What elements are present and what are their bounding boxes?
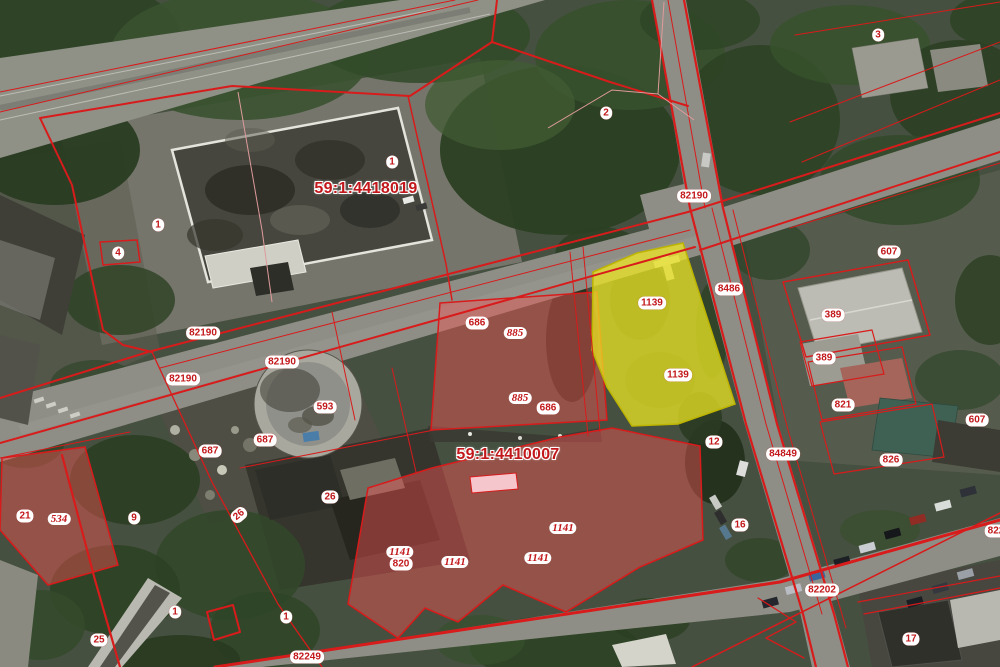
map-label-82249[interactable]: 82249 — [290, 651, 324, 664]
map-label-389[interactable]: 389 — [813, 352, 836, 365]
label-layer: 32159:1:44180198219016074848611393896868… — [0, 0, 1000, 667]
map-label-16[interactable]: 16 — [731, 519, 748, 532]
map-label-82202[interactable]: 82202 — [805, 584, 839, 597]
map-label-1141[interactable]: 1141 — [441, 556, 468, 568]
map-label-1[interactable]: 1 — [169, 606, 181, 619]
map-label-686[interactable]: 686 — [537, 402, 560, 415]
map-label-534[interactable]: 534 — [48, 513, 71, 525]
map-label-820[interactable]: 820 — [390, 558, 413, 571]
map-label-82190[interactable]: 82190 — [186, 327, 220, 340]
map-label-82190[interactable]: 82190 — [265, 356, 299, 369]
map-label-82190[interactable]: 82190 — [677, 190, 711, 203]
map-label-1141[interactable]: 1141 — [549, 522, 576, 534]
map-label-1[interactable]: 1 — [280, 611, 292, 624]
map-label-26[interactable]: 26 — [228, 505, 249, 526]
map-label-607[interactable]: 607 — [966, 414, 989, 427]
map-label-1[interactable]: 1 — [152, 219, 164, 232]
map-label-2[interactable]: 2 — [600, 107, 612, 120]
map-label-25[interactable]: 25 — [90, 634, 107, 647]
map-label-593[interactable]: 593 — [314, 401, 337, 414]
map-label-17[interactable]: 17 — [902, 633, 919, 646]
map-label-826[interactable]: 826 — [880, 454, 903, 467]
map-label-26[interactable]: 26 — [321, 491, 338, 504]
map-label-21[interactable]: 21 — [16, 510, 33, 523]
map-label-82190[interactable]: 82190 — [166, 373, 200, 386]
map-label-12[interactable]: 12 — [705, 436, 722, 449]
map-label-607[interactable]: 607 — [878, 246, 901, 259]
map-label-821[interactable]: 821 — [832, 399, 855, 412]
map-label-8486[interactable]: 8486 — [715, 283, 743, 296]
map-label-1139[interactable]: 1139 — [664, 369, 692, 382]
map-label-59-1-4410007[interactable]: 59:1:4410007 — [456, 447, 559, 463]
map-label-885[interactable]: 885 — [504, 327, 527, 339]
map-label-822[interactable]: 822 — [985, 525, 1000, 538]
map-label-885[interactable]: 885 — [509, 392, 532, 404]
map-label-9[interactable]: 9 — [128, 512, 140, 525]
map-label-389[interactable]: 389 — [822, 309, 845, 322]
map-label-687[interactable]: 687 — [254, 434, 277, 447]
map-label-3[interactable]: 3 — [872, 29, 884, 42]
map-label-687[interactable]: 687 — [199, 445, 222, 458]
cadastral-map[interactable]: 32159:1:44180198219016074848611393896868… — [0, 0, 1000, 667]
map-label-4[interactable]: 4 — [112, 247, 124, 260]
map-label-1141[interactable]: 1141 — [386, 546, 413, 558]
map-label-1141[interactable]: 1141 — [524, 552, 551, 564]
map-label-1[interactable]: 1 — [386, 156, 398, 169]
map-label-1139[interactable]: 1139 — [638, 297, 666, 310]
map-label-686[interactable]: 686 — [466, 317, 489, 330]
map-label-59-1-4418019[interactable]: 59:1:4418019 — [314, 181, 417, 197]
map-label-84849[interactable]: 84849 — [766, 448, 800, 461]
